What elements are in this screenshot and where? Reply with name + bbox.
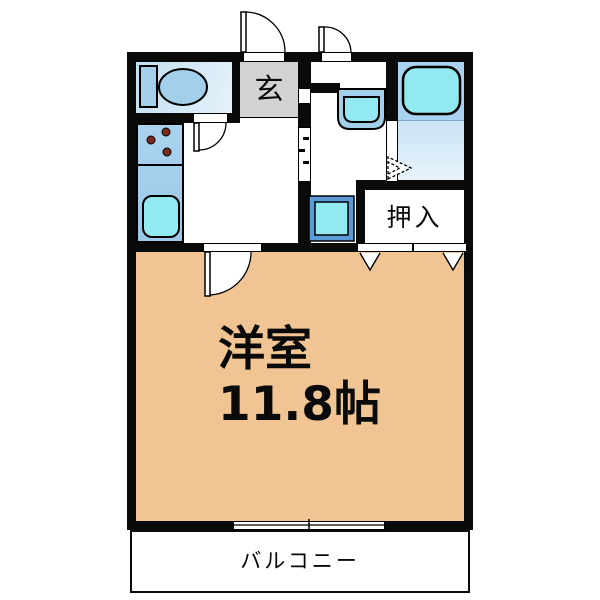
- fixtures-overlay: [0, 0, 600, 600]
- entrance-label: 玄: [240, 64, 298, 110]
- main-room-size-label: 11.8帖: [218, 377, 381, 432]
- door-swing-icon: [241, 12, 285, 52]
- sliding-door-arrow-icon: [443, 253, 463, 270]
- folding-door-arrow-icon: [388, 157, 411, 179]
- closet-label: 押入: [365, 191, 464, 241]
- kitchen-sink-icon: [143, 196, 179, 237]
- sliding-door-arrow-icon: [360, 253, 380, 270]
- floor-plan: 玄 押入 洋室 11.8帖 バルコニー: [0, 0, 600, 600]
- washbasin-bowl-icon: [344, 97, 379, 122]
- door-swing-icon: [194, 123, 226, 151]
- washer-pan-inner: [315, 202, 348, 235]
- door-swing-icon: [319, 27, 351, 52]
- main-room-type-label: 洋室: [218, 322, 381, 377]
- main-room-label: 洋室 11.8帖: [218, 322, 381, 433]
- toilet-icon: [159, 69, 207, 105]
- bathtub-icon: [403, 67, 460, 114]
- toilet-tank-icon: [140, 66, 157, 107]
- door-swing-icon: [205, 252, 251, 296]
- balcony-label: バルコニー: [137, 534, 463, 586]
- stove-burners-icon: [147, 128, 171, 156]
